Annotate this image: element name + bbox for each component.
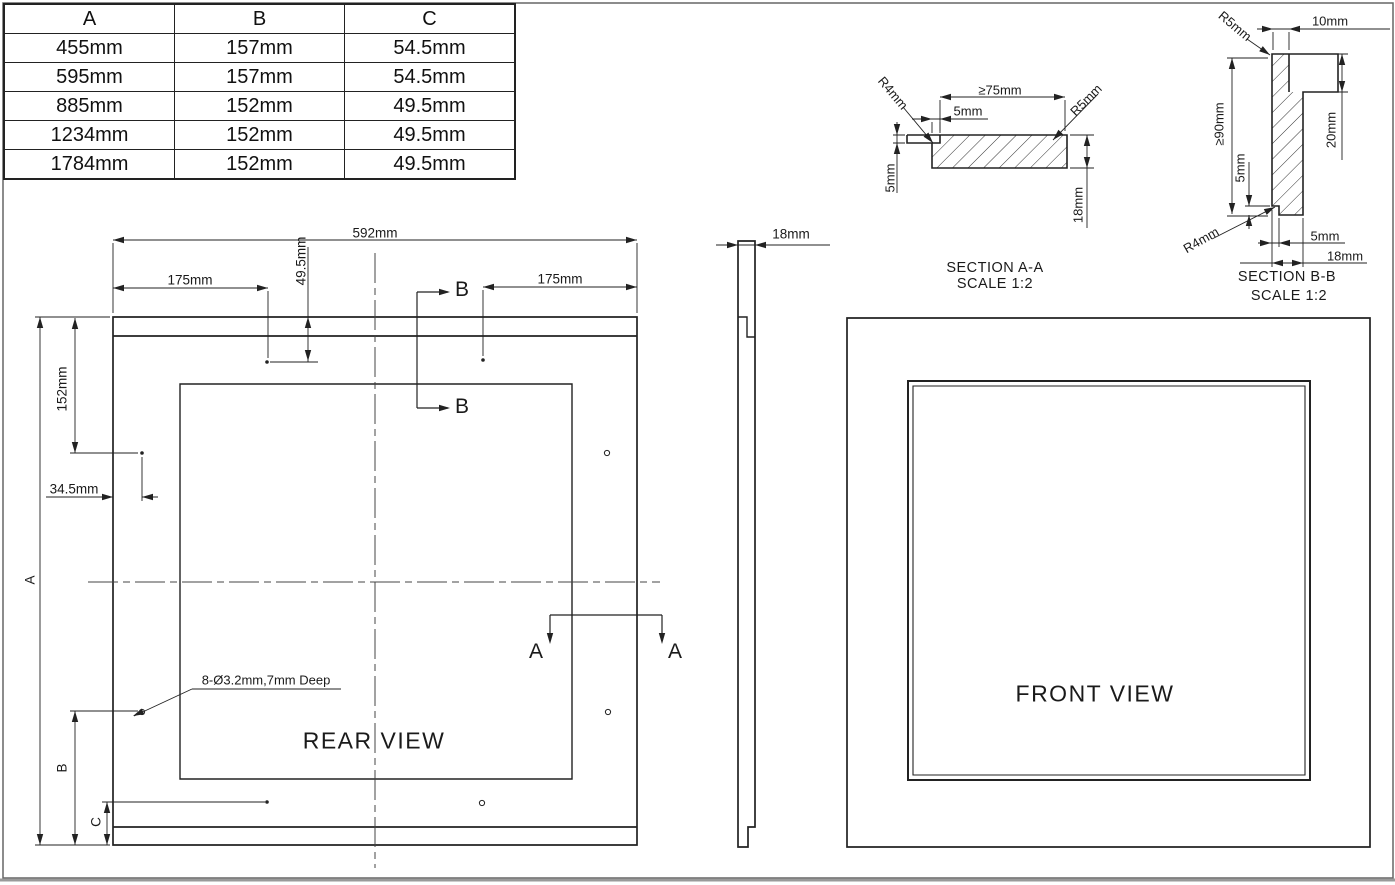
table-header-row: A B C bbox=[4, 4, 515, 34]
aa-dim-min-width: ≥75mm bbox=[978, 83, 1021, 98]
dim-c-ref: C bbox=[89, 817, 104, 827]
drawing-sheet: A B C 455mm 157mm 54.5mm 595mm 157mm 54.… bbox=[0, 0, 1395, 885]
section-aa-title: SECTION A-A bbox=[946, 260, 1043, 276]
size-table: A B C 455mm 157mm 54.5mm 595mm 157mm 54.… bbox=[3, 3, 516, 180]
section-mark-b-top: B bbox=[455, 278, 469, 302]
dim-height-ref: A bbox=[23, 575, 38, 584]
bb-dim-step-height: 5mm bbox=[1233, 154, 1248, 183]
col-header-c: C bbox=[345, 4, 516, 34]
section-aa-scale: SCALE 1:2 bbox=[957, 276, 1033, 292]
bb-dim-top-width: 10mm bbox=[1312, 14, 1348, 29]
section-bb-scale: SCALE 1:2 bbox=[1251, 288, 1327, 304]
holes-note: 8-Ø3.2mm,7mm Deep bbox=[202, 673, 331, 688]
aa-dim-thickness: 18mm bbox=[1071, 187, 1086, 223]
section-mark-a-left: A bbox=[529, 640, 543, 664]
rear-view-title: REAR VIEW bbox=[303, 728, 446, 755]
front-view-outline bbox=[847, 318, 1370, 847]
bb-dim-thickness: 18mm bbox=[1327, 249, 1363, 264]
front-view-title: FRONT VIEW bbox=[1016, 681, 1175, 708]
bb-dim-min-height: ≥90mm bbox=[1212, 102, 1227, 145]
dim-b-ref: B bbox=[55, 763, 70, 772]
table-row: 1784mm 152mm 49.5mm bbox=[4, 150, 515, 180]
section-bb-title: SECTION B-B bbox=[1238, 269, 1336, 285]
table-row: 455mm 157mm 54.5mm bbox=[4, 34, 515, 63]
dim-hole-row-offset: 49.5mm bbox=[294, 237, 309, 286]
bb-dim-step-width: 5mm bbox=[1311, 229, 1340, 244]
table-row: 1234mm 152mm 49.5mm bbox=[4, 121, 515, 150]
dim-hole-from-left: 175mm bbox=[167, 273, 212, 288]
side-view-outline bbox=[738, 241, 755, 847]
aa-dim-lip-thickness: 5mm bbox=[883, 164, 898, 193]
bb-dim-tab-height: 20mm bbox=[1324, 112, 1339, 148]
dim-edge-offset: 34.5mm bbox=[50, 482, 99, 497]
section-mark-b-bottom: B bbox=[455, 395, 469, 419]
dim-hole-from-right: 175mm bbox=[537, 272, 582, 287]
dim-panel-thickness: 18mm bbox=[772, 227, 810, 242]
col-header-a: A bbox=[4, 4, 175, 34]
table-row: 595mm 157mm 54.5mm bbox=[4, 63, 515, 92]
aa-dim-lip-inset: 5mm bbox=[954, 104, 983, 119]
dim-overall-width: 592mm bbox=[352, 226, 397, 241]
col-header-b: B bbox=[175, 4, 345, 34]
dim-side-hole-offset: 152mm bbox=[55, 366, 70, 411]
rear-view-centerlines bbox=[88, 253, 660, 868]
section-mark-a-right: A bbox=[668, 640, 682, 664]
table-row: 885mm 152mm 49.5mm bbox=[4, 92, 515, 121]
